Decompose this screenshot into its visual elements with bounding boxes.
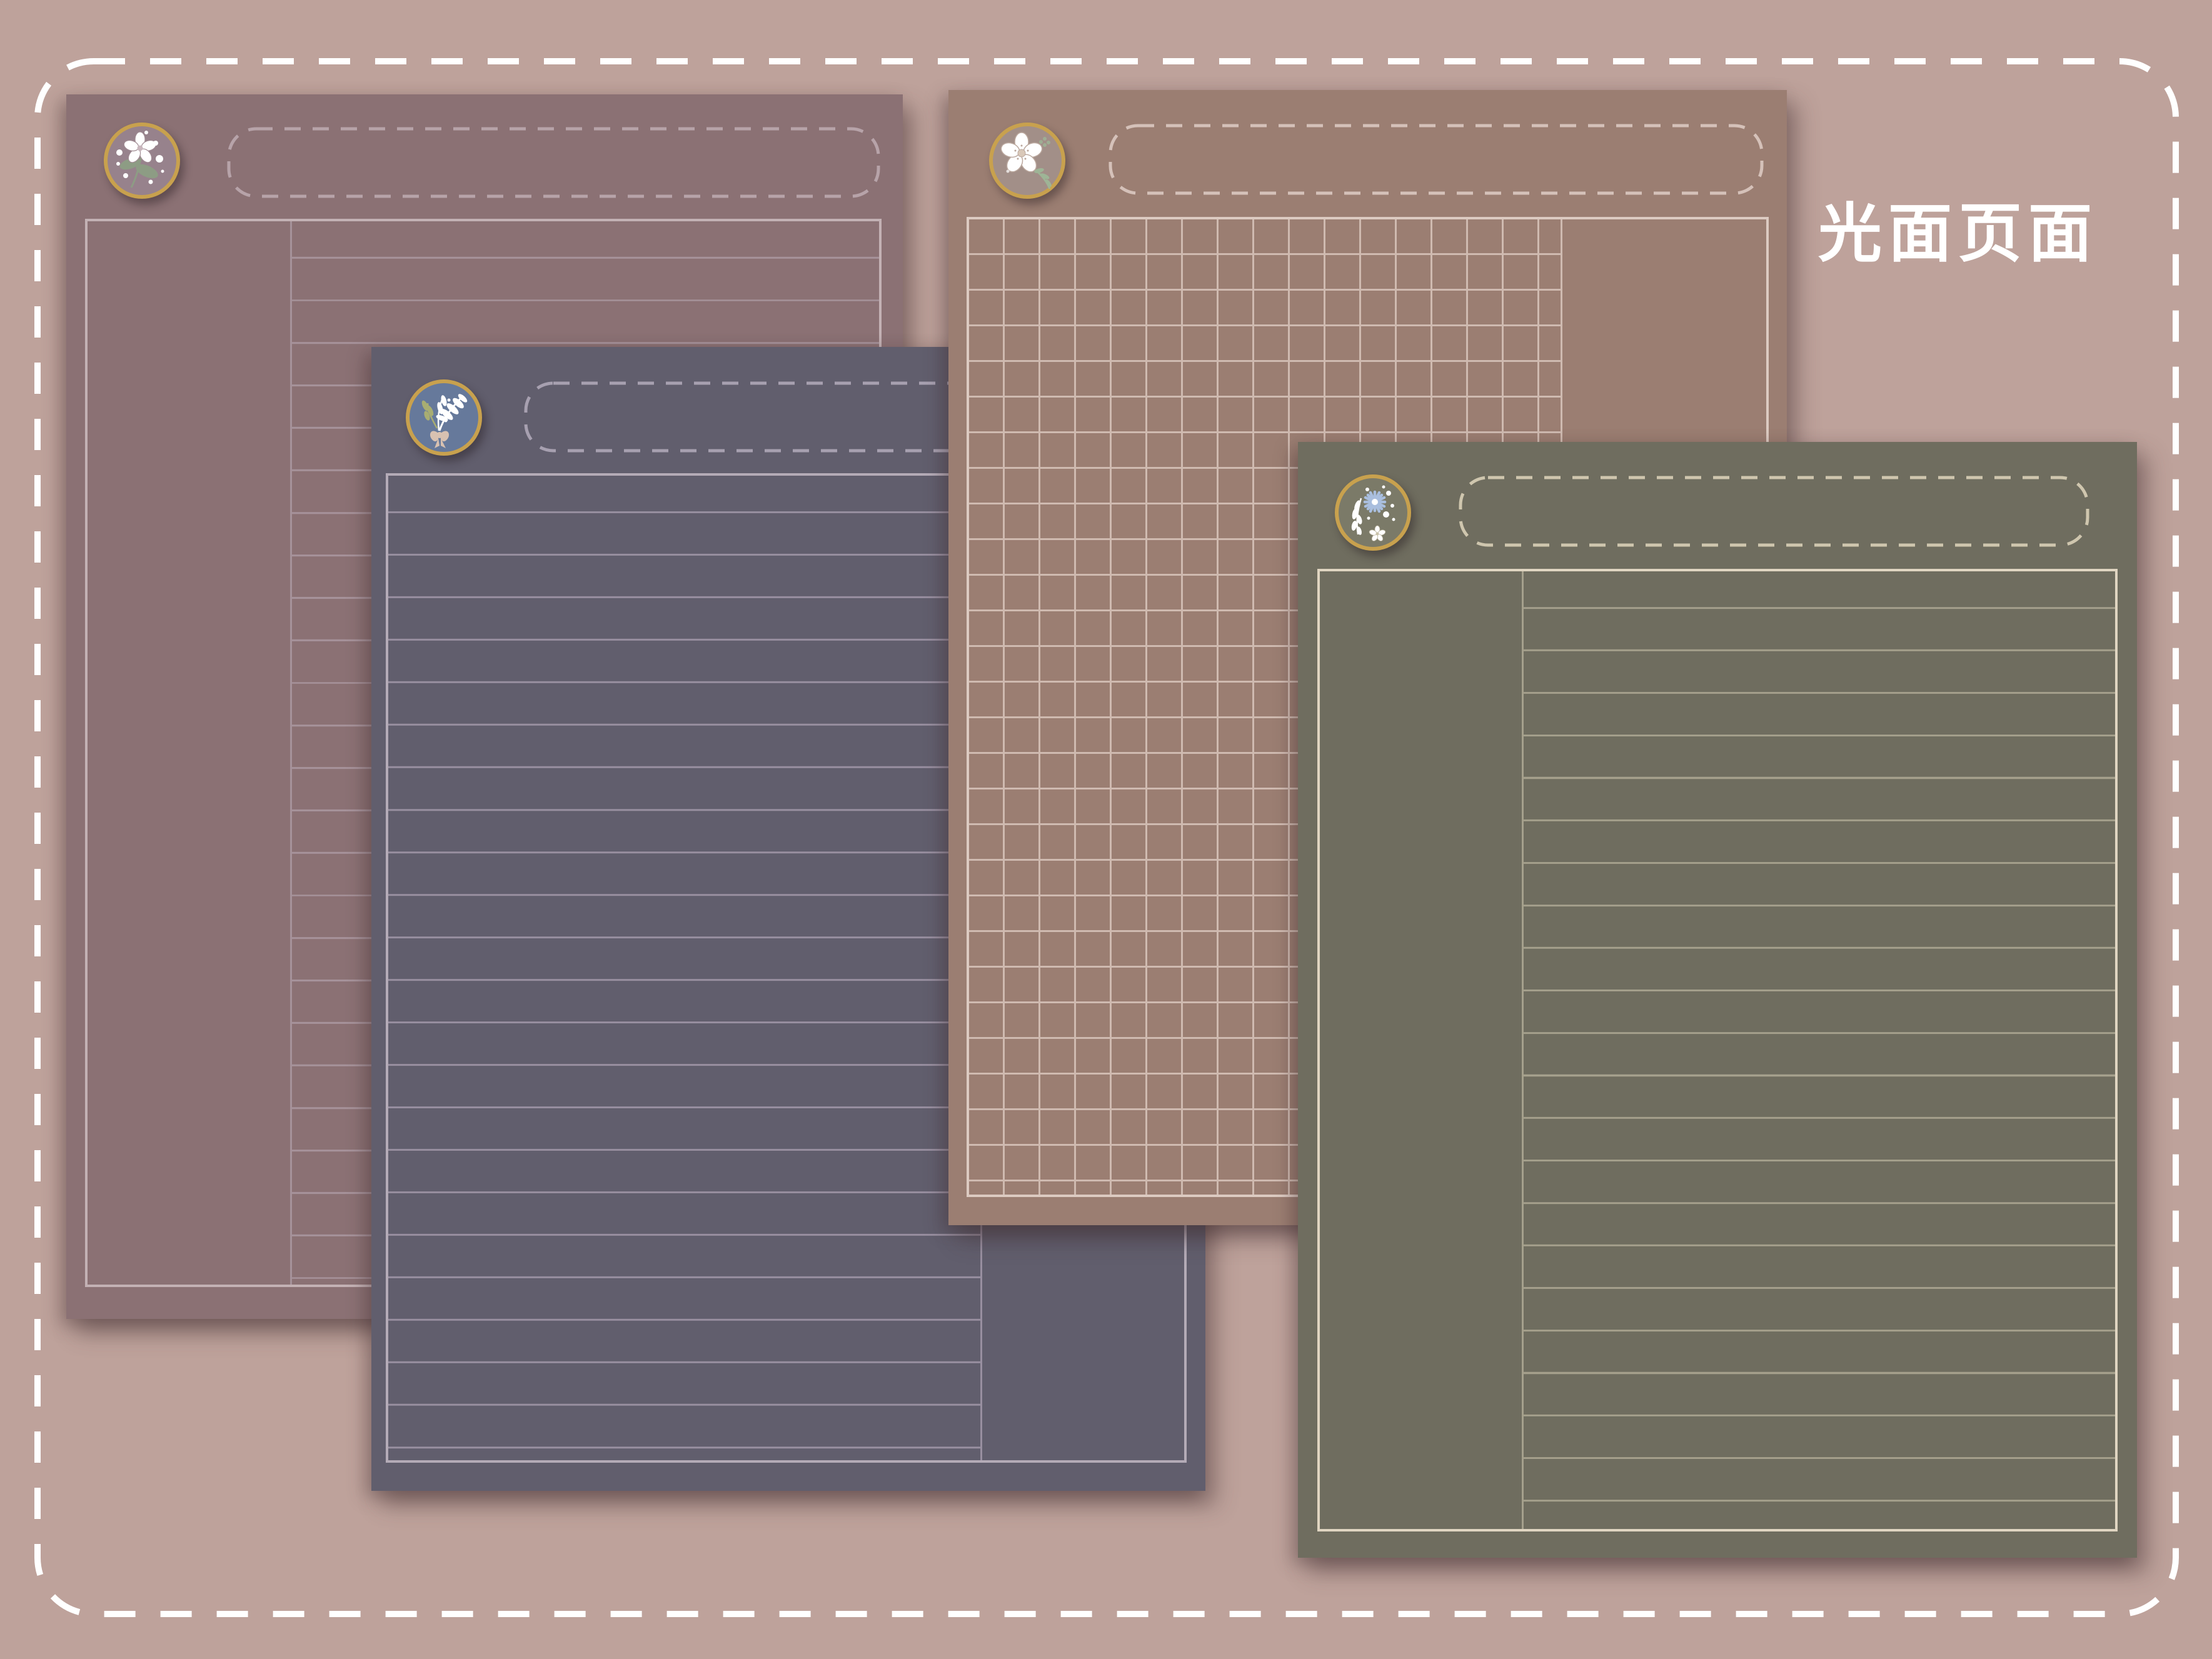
ruled-lines	[1522, 571, 2115, 1529]
canvas: { "canvas": { "background_color": "#bea2…	[0, 0, 2212, 1659]
leaf-bouquet-bow-icon	[410, 383, 478, 452]
badge-plum-blossom	[104, 123, 180, 199]
page-olive-lined	[1298, 442, 2137, 1558]
title-box	[227, 127, 880, 198]
content-area	[1317, 569, 2118, 1531]
title-box	[1459, 476, 2089, 547]
title-box	[1109, 124, 1764, 195]
aster-flower-icon	[1339, 478, 1407, 547]
plum-blossom-branch-icon	[108, 126, 176, 195]
caption-text: 光面页面	[1818, 183, 2168, 274]
badge-sakura	[989, 123, 1065, 199]
sakura-flower-icon	[993, 126, 1062, 195]
badge-aster	[1335, 474, 1411, 551]
ruled-lines	[388, 476, 982, 1460]
badge-leaf-bouquet	[406, 379, 482, 456]
